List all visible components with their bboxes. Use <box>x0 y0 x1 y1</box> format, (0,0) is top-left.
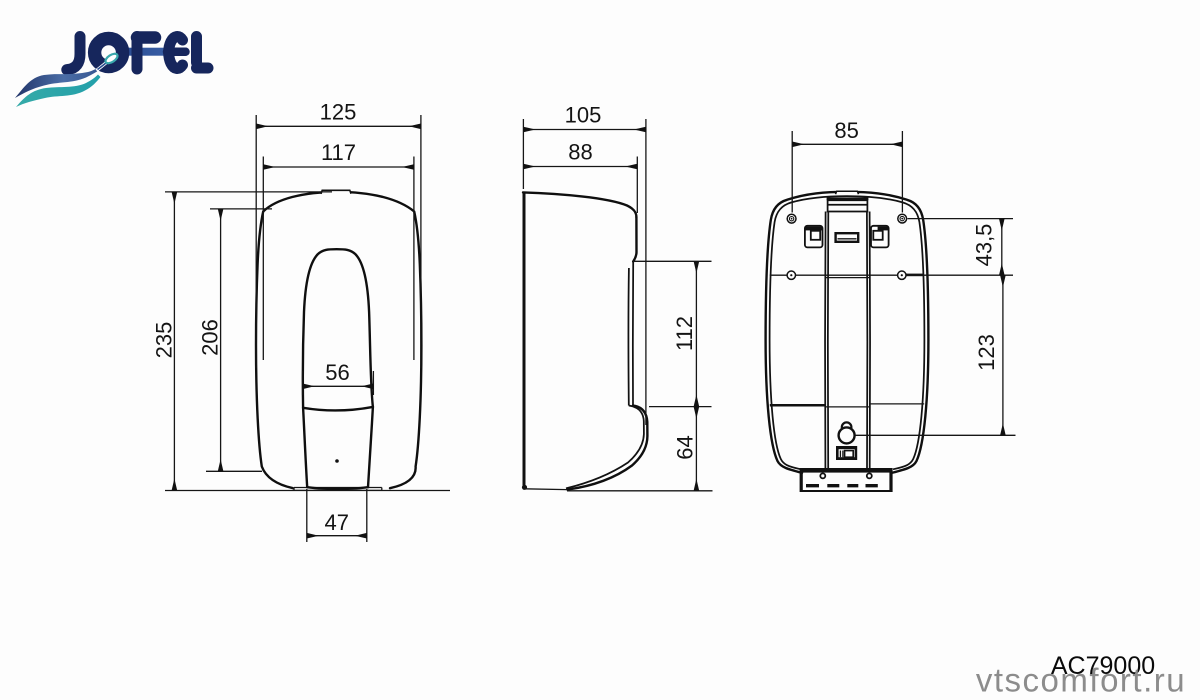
svg-text:123: 123 <box>974 334 999 371</box>
svg-text:235: 235 <box>152 322 177 359</box>
svg-text:117: 117 <box>321 140 356 165</box>
svg-text:112: 112 <box>672 316 697 351</box>
svg-text:206: 206 <box>198 319 223 356</box>
svg-text:43,5: 43,5 <box>972 224 997 267</box>
svg-text:88: 88 <box>568 140 592 165</box>
svg-text:47: 47 <box>325 510 349 535</box>
svg-text:85: 85 <box>834 118 858 143</box>
svg-text:56: 56 <box>325 360 349 385</box>
svg-text:64: 64 <box>673 435 698 459</box>
svg-text:125: 125 <box>320 100 357 125</box>
svg-text:vtscomfort.ru: vtscomfort.ru <box>976 662 1186 699</box>
svg-text:105: 105 <box>565 103 602 128</box>
